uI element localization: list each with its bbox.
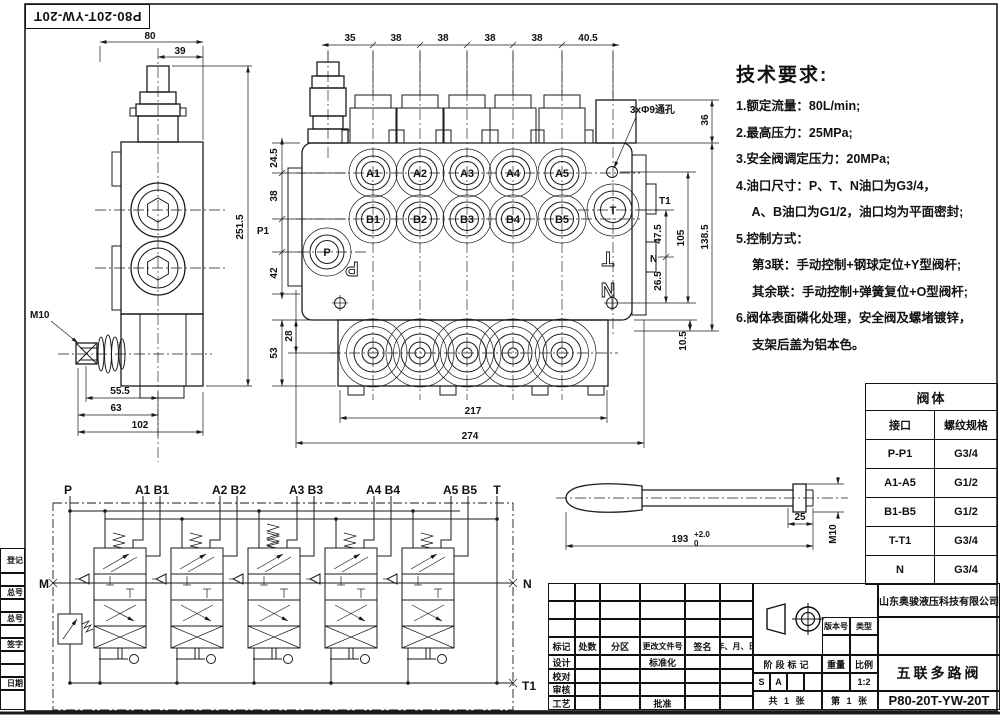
port-b2: B2: [413, 214, 427, 226]
schematic-label-t1: T1: [522, 679, 536, 693]
schematic-label-a5b5: A5 B5: [443, 483, 477, 497]
port-a1: A1: [366, 168, 380, 180]
port-a4: A4: [506, 168, 521, 180]
tech-req-line: 4.油口尺寸：P、T、N油口为G3/4，: [736, 173, 998, 200]
spec-cell: G3/4: [935, 440, 997, 468]
port-p: P: [323, 247, 330, 259]
side-view: 80 39 251.5 M10 55.5 63 102: [30, 31, 252, 462]
scale-value: 1:2: [850, 673, 878, 691]
handle-tol-lower: 0: [694, 539, 699, 548]
side-lever-thread: M10: [30, 310, 50, 321]
schematic-label-a4b4: A4 B4: [366, 483, 400, 497]
top-dim-5: 38: [531, 33, 543, 44]
tech-req-line: A、B油口为G1/2，油口均为平面密封;: [736, 199, 998, 226]
port-spec-table: 阀体 接口 螺纹规格 P-P1 G3/4 A1-A5 G1/2 B1-B5 G1…: [865, 383, 998, 585]
spec-cell: G1/2: [935, 498, 997, 526]
spec-cell: G3/4: [935, 556, 997, 584]
table-row: T-T1 G3/4: [866, 526, 997, 555]
schematic-label-a2b2: A2 B2: [212, 483, 246, 497]
port-cell: T-T1: [866, 527, 935, 555]
margin-label: 日期: [0, 677, 25, 690]
tech-req-line: 2.最高压力：25MPa;: [736, 120, 998, 147]
port-cell: P-P1: [866, 440, 935, 468]
schematic-label-n: N: [523, 577, 532, 591]
side-dim-lever-span: 63: [110, 403, 122, 414]
port-p1-label: P1: [257, 226, 270, 237]
port-table-header-interface: 接口: [866, 411, 935, 439]
tech-requirements-title: 技术要求:: [736, 60, 998, 87]
spec-cell: G3/4: [935, 527, 997, 555]
role-check: 校对: [548, 669, 575, 683]
technical-requirements: 技术要求: 1.额定流量：80L/min; 2.最高压力：25MPa; 3.安全…: [736, 60, 998, 358]
top-dim-1: 35: [344, 33, 356, 44]
bottom-dim-217: 217: [465, 406, 482, 417]
model-number: P80-20T-YW-20T: [878, 691, 1000, 710]
side-dim-depth: 102: [132, 420, 149, 431]
port-cell: B1-B5: [866, 498, 935, 526]
weight-label: 重量: [822, 655, 850, 673]
rev-header-docno: 更改文件号: [640, 637, 685, 655]
table-row: A1-A5 G1/2: [866, 468, 997, 497]
margin-label: 签字: [0, 638, 25, 651]
tech-req-line: 6.阀体表面磷化处理，安全阀及螺堵镀锌，: [736, 305, 998, 332]
projection-symbol-icon: [763, 595, 825, 643]
left-dim-b: 38: [269, 190, 280, 202]
right-dim-10-5: 10.5: [678, 331, 689, 351]
top-dim-4: 38: [484, 33, 496, 44]
handle-thread-label: M10: [828, 524, 839, 544]
margin-label: 总号: [0, 612, 25, 625]
rev-header-zone: 分区: [600, 637, 640, 655]
port-table-header-spec: 螺纹规格: [935, 411, 997, 439]
schematic-label-m: M: [39, 577, 49, 591]
right-dim-26-5: 26.5: [653, 271, 664, 291]
port-a5: A5: [555, 168, 569, 180]
sheet-number: 第 1 张: [822, 691, 878, 710]
port-b1: B1: [366, 214, 380, 226]
version-label: 版本号: [822, 617, 850, 635]
stage-label: 阶段标记: [753, 655, 822, 673]
margin-label: 登记: [0, 548, 25, 573]
handle-view: 25 M10 193 +2.0 0: [556, 477, 848, 550]
part-number-text: P80-20T-YW-20T: [34, 9, 142, 24]
handle-dim-25: 25: [794, 512, 806, 523]
port-n-label: N: [650, 254, 657, 265]
margin-label: 总号: [0, 586, 25, 599]
tech-req-line: 第3联：手动控制+钢球定位+Y型阀杆;: [736, 252, 998, 279]
schematic-label-p: P: [64, 483, 72, 497]
port-cell: N: [866, 556, 935, 584]
engineering-drawing-canvas: 80 39 251.5 M10 55.5 63 102: [0, 0, 1000, 725]
left-dim-42: 42: [269, 267, 280, 279]
port-b3: B3: [460, 214, 474, 226]
title-block: 标记 处数 分区 更改文件号 签名 年、月、日 设计 标准化 校对 审核 工艺 …: [548, 583, 1000, 710]
left-dim-53: 53: [269, 347, 280, 359]
schematic-label-t: T: [493, 483, 501, 497]
handle-dim-length: 193: [672, 534, 689, 545]
top-dim-2: 38: [390, 33, 402, 44]
right-dim-47-5: 47.5: [653, 224, 664, 244]
port-a2: A2: [413, 168, 427, 180]
port-a3: A3: [460, 168, 474, 180]
handle-tol-upper: +2.0: [694, 530, 710, 539]
schematic-label-a3b3: A3 B3: [289, 483, 323, 497]
port-cell: A1-A5: [866, 469, 935, 497]
bottom-dim-274: 274: [462, 431, 479, 442]
side-dim-height: 251.5: [235, 214, 246, 239]
left-dim-28: 28: [284, 330, 295, 342]
rev-header-mark: 标记: [548, 637, 575, 655]
port-b5: B5: [555, 214, 569, 226]
tech-req-line: 3.安全阀调定压力：20MPa;: [736, 146, 998, 173]
rev-header-sign: 签名: [685, 637, 720, 655]
stage-mark-a: A: [770, 673, 787, 691]
side-dim-half-width: 39: [174, 46, 186, 57]
rev-header-count: 处数: [575, 637, 600, 655]
table-row: B1-B5 G1/2: [866, 497, 997, 526]
stage-mark-s: S: [753, 673, 770, 691]
hole-note: 3xΦ9通孔: [630, 103, 675, 116]
left-dim-a: 24.5: [269, 148, 280, 168]
role-approval: 批准: [640, 696, 685, 710]
role-design: 设计: [548, 655, 575, 669]
top-dim-3: 38: [437, 33, 449, 44]
hydraulic-schematic: P A1 B1 A2 B2 A3 B3 A4 B4 A5 B5 T M N T1: [39, 483, 536, 710]
rev-header-date: 年、月、日: [720, 637, 753, 655]
table-row: N G3/4: [866, 555, 997, 584]
schematic-label-a1b1: A1 B1: [135, 483, 169, 497]
spec-cell: G1/2: [935, 469, 997, 497]
role-standardization: 标准化: [640, 655, 685, 669]
cast-letter-n: N: [601, 278, 615, 300]
right-dim-105: 105: [676, 229, 687, 246]
tech-req-line: 5.控制方式：: [736, 226, 998, 253]
margin-strip: 登记 总号 总号 签字 日期: [0, 548, 25, 710]
port-b4: B4: [506, 214, 521, 226]
table-row: P-P1 G3/4: [866, 439, 997, 468]
cast-letter-t: T: [602, 247, 614, 269]
tech-req-line: 1.额定流量：80L/min;: [736, 93, 998, 120]
tech-req-line: 支架后盖为铝本色。: [736, 332, 998, 359]
type-label: 类型: [850, 617, 878, 635]
front-view: A1 A2 A3 A4 A5 B1 B2 B3 B4 B5 P T P T N …: [257, 33, 719, 448]
part-number-box: P80-20T-YW-20T: [25, 4, 150, 29]
port-table-title: 阀体: [866, 384, 997, 410]
side-dim-lever-offset: 55.5: [110, 386, 130, 397]
company-name: 山东奥骏液压科技有限公司: [878, 583, 1000, 617]
right-dim-138-5: 138.5: [700, 224, 711, 249]
role-process: 工艺: [548, 696, 575, 710]
cast-letter-p: P: [345, 257, 358, 279]
port-t: T: [610, 205, 617, 217]
side-dim-width: 80: [144, 31, 156, 42]
sheet-total: 共 1 张: [753, 691, 822, 710]
scale-label: 比例: [850, 655, 878, 673]
product-name: 五联多路阀: [878, 655, 1000, 691]
role-review: 审核: [548, 683, 575, 696]
port-t1-label: T1: [659, 196, 671, 207]
right-dim-36: 36: [700, 114, 711, 126]
top-dim-6: 40.5: [578, 33, 598, 44]
tech-req-line: 其余联：手动控制+弹簧复位+O型阀杆;: [736, 279, 998, 306]
